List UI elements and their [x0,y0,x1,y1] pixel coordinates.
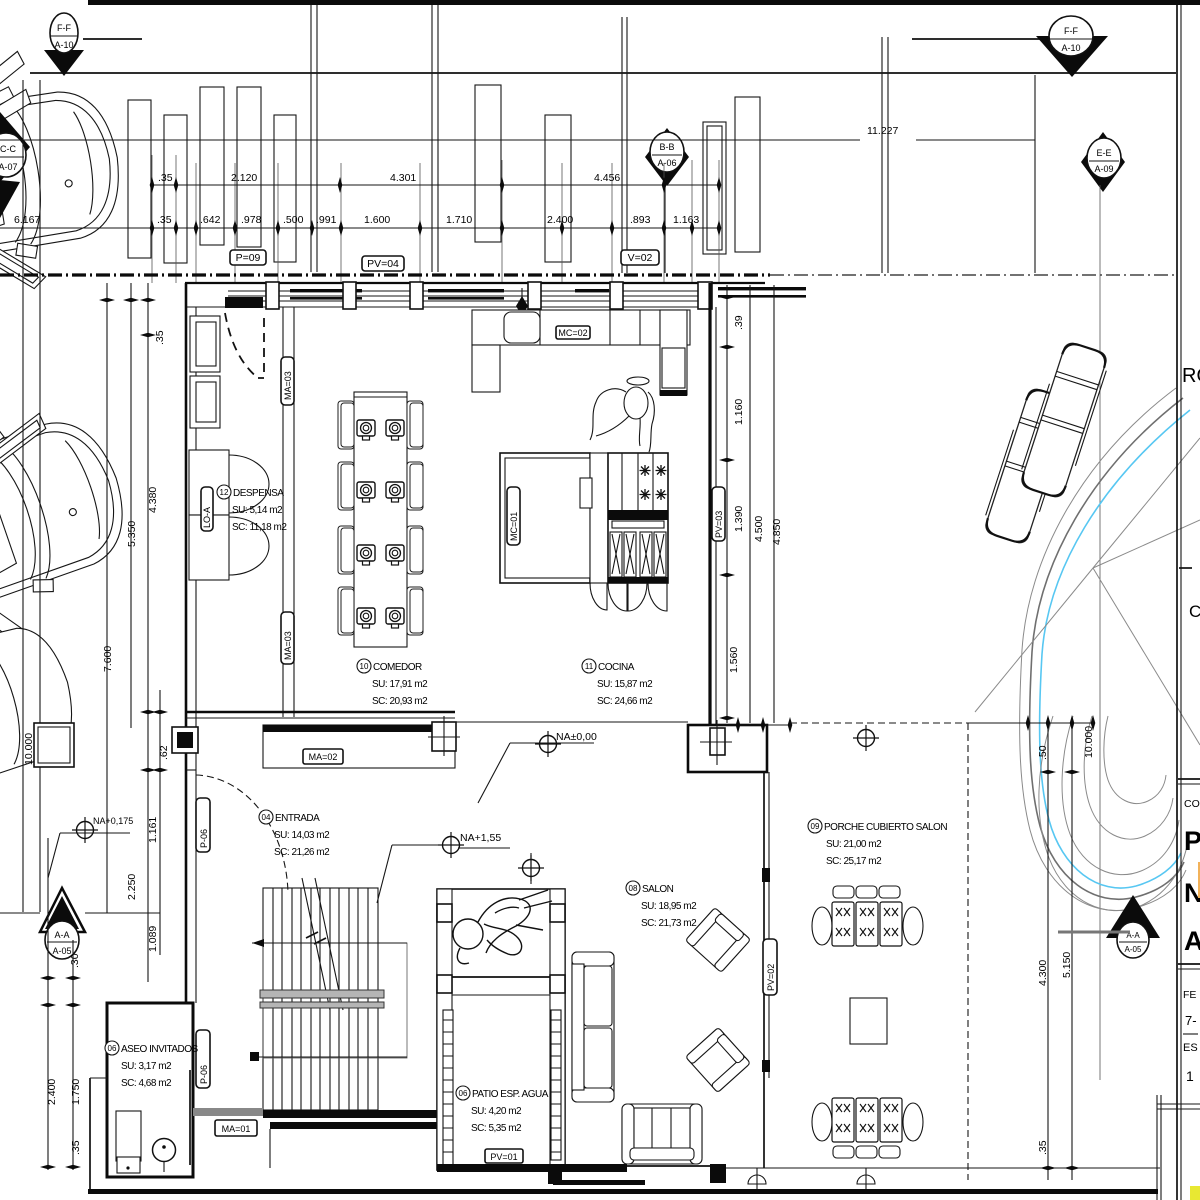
svg-text:PORCHE CUBIERTO SALON: PORCHE CUBIERTO SALON [824,822,947,833]
svg-text:4.850: 4.850 [771,519,783,545]
svg-text:2.400: 2.400 [46,1079,58,1105]
svg-text:.50: .50 [1037,745,1049,760]
svg-text:4.301: 4.301 [390,172,416,184]
svg-text:.30: .30 [69,953,81,968]
svg-text:2.250: 2.250 [126,874,138,900]
svg-text:.35: .35 [1037,1140,1049,1155]
svg-text:.500: .500 [283,214,304,226]
svg-text:06: 06 [459,1089,468,1098]
svg-text:PV=01: PV=01 [490,1152,517,1162]
svg-text:.35: .35 [154,330,166,345]
svg-text:08: 08 [629,884,638,893]
svg-text:COMEDOR: COMEDOR [373,662,422,673]
svg-text:.39: .39 [733,315,745,330]
svg-text:SC: 25,17 m2: SC: 25,17 m2 [826,856,882,867]
svg-text:5.350: 5.350 [126,521,138,547]
svg-text:5.150: 5.150 [1061,952,1073,978]
svg-text:P: P [1184,826,1200,856]
svg-text:.991: .991 [316,214,337,226]
svg-text:RO: RO [1182,365,1200,387]
svg-text:P-06: P-06 [199,829,209,848]
svg-text:SC: 20,93 m2: SC: 20,93 m2 [372,696,428,707]
svg-text:ASEO INVITADOS: ASEO INVITADOS [121,1044,199,1055]
svg-text:MA=01: MA=01 [222,1124,251,1134]
svg-text:SC: 11,18 m2: SC: 11,18 m2 [232,522,287,533]
svg-text:.893: .893 [630,214,651,226]
svg-text:SU: 21,00 m2: SU: 21,00 m2 [826,839,882,850]
svg-text:PV=02: PV=02 [766,964,776,991]
svg-text:C-C: C-C [0,144,16,154]
svg-text:.62: .62 [158,745,170,760]
svg-text:SC: 5,35 m2: SC: 5,35 m2 [471,1123,522,1134]
svg-text:SC: 24,66 m2: SC: 24,66 m2 [597,696,653,707]
svg-text:ES: ES [1183,1042,1198,1054]
svg-text:SU: 3,17 m2: SU: 3,17 m2 [121,1061,172,1072]
svg-text:.35: .35 [157,214,172,226]
svg-text:SU: 14,03 m2: SU: 14,03 m2 [274,830,330,841]
svg-text:ENTRADA: ENTRADA [275,813,320,824]
svg-text:1.163: 1.163 [673,214,699,226]
svg-text:SC: 21,73 m2: SC: 21,73 m2 [641,918,697,929]
svg-text:06: 06 [108,1044,117,1053]
svg-text:A-10: A-10 [1061,43,1080,53]
svg-text:FE: FE [1183,989,1196,1001]
svg-text:10.000: 10.000 [1083,726,1095,758]
svg-text:MC=01: MC=01 [509,512,519,541]
svg-text:6.167: 6.167 [14,214,40,226]
svg-text:1.161: 1.161 [147,817,159,843]
svg-text:NA+0,175: NA+0,175 [93,816,133,826]
svg-text:A-A: A-A [54,930,69,940]
svg-text:1.710: 1.710 [446,214,472,226]
svg-text:N: N [1184,878,1200,908]
svg-text:NA±0,00: NA±0,00 [556,731,597,743]
svg-text:4.500: 4.500 [753,516,765,542]
svg-text:12: 12 [220,488,229,497]
svg-text:SU: 15,87 m2: SU: 15,87 m2 [597,679,653,690]
svg-text:SU: 4,20 m2: SU: 4,20 m2 [471,1106,522,1117]
svg-text:.35: .35 [158,172,173,184]
svg-text:1.089: 1.089 [147,926,159,952]
svg-text:A-09: A-09 [1094,164,1113,174]
svg-text:COCINA: COCINA [598,662,635,673]
svg-text:SC: 21,26 m2: SC: 21,26 m2 [274,847,330,858]
svg-text:NA+1,55: NA+1,55 [460,832,501,844]
svg-text:7-: 7- [1185,1013,1197,1028]
svg-text:A-07: A-07 [0,162,18,172]
svg-text:CO: CO [1184,798,1200,810]
svg-text:1.750: 1.750 [70,1079,82,1105]
svg-text:11.227: 11.227 [867,125,898,137]
svg-text:SU: 18,95 m2: SU: 18,95 m2 [641,901,697,912]
svg-text:PV=03: PV=03 [714,511,724,538]
svg-text:1.600: 1.600 [364,214,390,226]
svg-text:B-B: B-B [659,142,674,152]
svg-text:.978: .978 [241,214,262,226]
svg-text:2.400: 2.400 [547,214,573,226]
svg-text:C: C [1189,602,1200,621]
svg-text:10: 10 [360,662,369,671]
svg-text:PATIO ESP. AGUA: PATIO ESP. AGUA [472,1089,549,1100]
svg-text:PV=04: PV=04 [367,258,399,270]
svg-text:MA=02: MA=02 [309,752,338,762]
svg-text:1.160: 1.160 [733,399,745,425]
svg-text:A-10: A-10 [54,40,73,50]
svg-text:.642: .642 [200,214,221,226]
svg-text:.35: .35 [70,1140,82,1155]
svg-text:SU: 17,91 m2: SU: 17,91 m2 [372,679,428,690]
svg-text:SALON: SALON [642,884,674,895]
svg-text:1.560: 1.560 [728,647,740,673]
svg-text:A: A [1184,926,1200,956]
svg-text:P-06: P-06 [199,1065,209,1084]
svg-text:4.456: 4.456 [594,172,620,184]
svg-text:A-05: A-05 [1125,945,1142,954]
svg-text:4.380: 4.380 [147,487,159,513]
svg-text:F-F: F-F [57,23,71,33]
svg-text:09: 09 [811,822,820,831]
svg-text:LO-A: LO-A [202,507,212,528]
svg-text:7.600: 7.600 [102,646,114,672]
svg-text:1: 1 [1186,1068,1194,1084]
svg-text:1.390: 1.390 [733,506,745,532]
svg-text:MA=03: MA=03 [283,631,293,660]
svg-text:04: 04 [262,813,271,822]
svg-text:4.300: 4.300 [1037,960,1049,986]
svg-text:P=09: P=09 [236,252,261,264]
svg-text:MC=02: MC=02 [558,328,587,338]
svg-text:MA=03: MA=03 [283,371,293,400]
svg-text:A-06: A-06 [657,158,676,168]
svg-text:11: 11 [585,662,594,671]
svg-text:DESPENSA: DESPENSA [233,488,284,499]
svg-text:V=02: V=02 [628,252,653,264]
svg-text:SU: 5,14 m2: SU: 5,14 m2 [232,505,283,516]
svg-text:E-E: E-E [1096,148,1111,158]
svg-text:2.120: 2.120 [231,172,257,184]
svg-text:F-F: F-F [1064,26,1078,36]
svg-text:SC: 4,68 m2: SC: 4,68 m2 [121,1078,172,1089]
